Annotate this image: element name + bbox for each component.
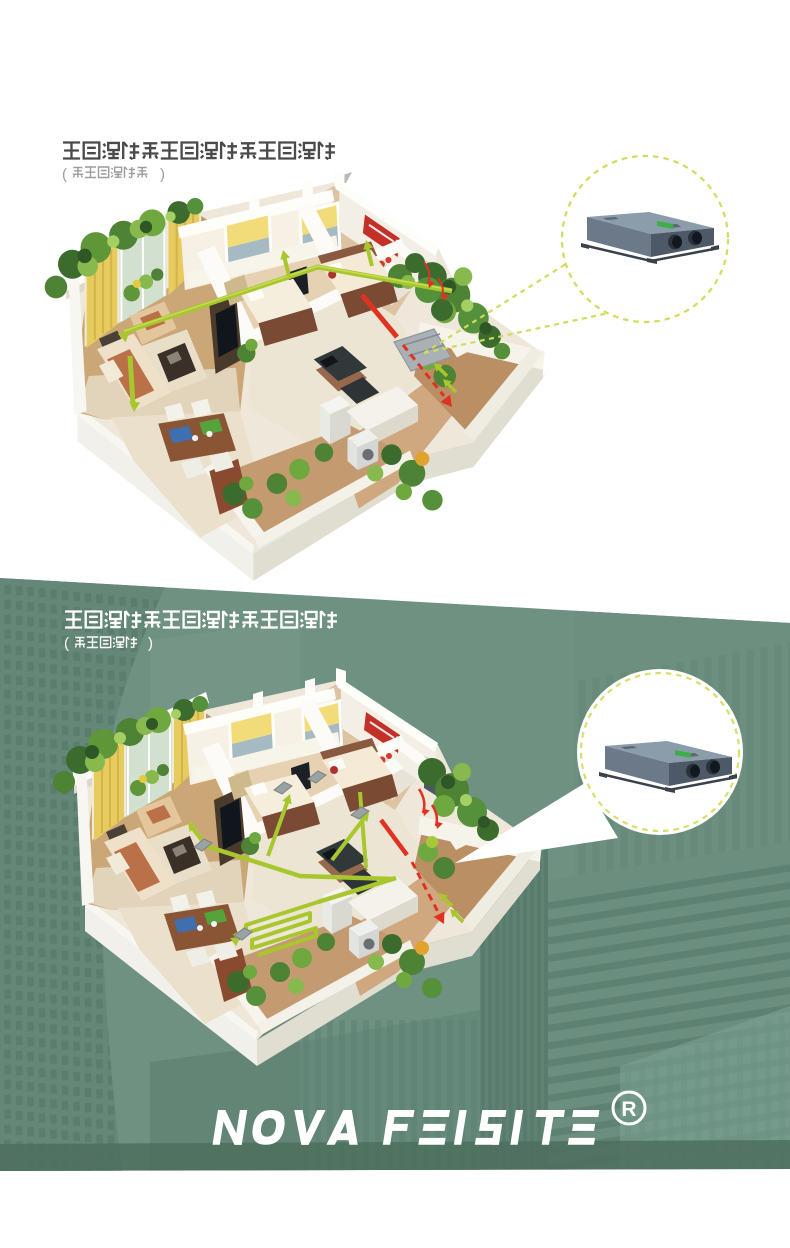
svg-text:): ) [160, 166, 165, 183]
svg-text:R: R [621, 1098, 636, 1121]
svg-text:(: ( [62, 166, 67, 183]
svg-text:(: ( [64, 635, 69, 652]
svg-text:): ) [148, 635, 153, 652]
